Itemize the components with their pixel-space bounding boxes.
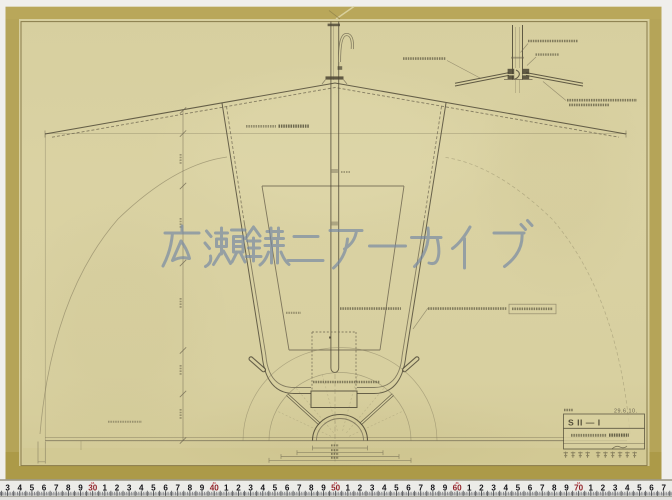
svg-text:1: 1 [103, 484, 108, 493]
svg-text:6: 6 [528, 484, 533, 493]
svg-text:3: 3 [248, 484, 253, 493]
svg-text:5: 5 [516, 484, 521, 493]
svg-text:8: 8 [431, 484, 436, 493]
svg-text:4: 4 [625, 484, 630, 493]
svg-text:2: 2 [115, 484, 120, 493]
svg-text:7: 7 [297, 484, 302, 493]
svg-text:4: 4 [139, 484, 144, 493]
svg-text:7: 7 [54, 484, 59, 493]
svg-text:6: 6 [406, 484, 411, 493]
svg-text:5: 5 [637, 484, 642, 493]
svg-text:9: 9 [443, 484, 448, 493]
svg-text:50: 50 [331, 484, 341, 493]
svg-text:3: 3 [491, 484, 496, 493]
svg-text:6: 6 [42, 484, 47, 493]
svg-text:7: 7 [175, 484, 180, 493]
svg-text:5: 5 [394, 484, 399, 493]
svg-text:7: 7 [418, 484, 423, 493]
svg-text:5: 5 [30, 484, 35, 493]
svg-text:40: 40 [210, 484, 220, 493]
svg-text:5: 5 [273, 484, 278, 493]
svg-text:6: 6 [163, 484, 168, 493]
svg-text:9: 9 [321, 484, 326, 493]
svg-text:7: 7 [661, 484, 666, 493]
svg-text:▴▴: ▴▴ [454, 480, 459, 484]
svg-text:▴▴: ▴▴ [333, 480, 338, 484]
svg-text:4: 4 [18, 484, 23, 493]
svg-text:1: 1 [224, 484, 229, 493]
svg-text:8: 8 [66, 484, 71, 493]
svg-text:4: 4 [503, 484, 508, 493]
svg-text:3: 3 [613, 484, 618, 493]
svg-text:8: 8 [552, 484, 557, 493]
svg-text:3: 3 [370, 484, 375, 493]
svg-text:60: 60 [453, 484, 463, 493]
svg-text:4: 4 [261, 484, 266, 493]
svg-text:9: 9 [564, 484, 569, 493]
svg-text:▴▴: ▴▴ [212, 480, 217, 484]
svg-text:▴▴: ▴▴ [576, 480, 581, 484]
svg-text:3: 3 [127, 484, 132, 493]
svg-text:3: 3 [5, 484, 10, 493]
svg-text:70: 70 [574, 484, 584, 493]
svg-text:1: 1 [346, 484, 351, 493]
svg-text:1: 1 [467, 484, 472, 493]
svg-text:4: 4 [382, 484, 387, 493]
svg-text:5: 5 [151, 484, 156, 493]
svg-text:6: 6 [649, 484, 654, 493]
svg-text:2: 2 [601, 484, 606, 493]
svg-text:2: 2 [358, 484, 363, 493]
svg-text:2: 2 [236, 484, 241, 493]
svg-text:9: 9 [200, 484, 205, 493]
svg-text:7: 7 [540, 484, 545, 493]
svg-text:S II — I: S II — I [568, 417, 601, 427]
svg-text:1: 1 [589, 484, 594, 493]
svg-text:▴▴: ▴▴ [90, 480, 95, 484]
svg-text:8: 8 [309, 484, 314, 493]
svg-text:8: 8 [188, 484, 193, 493]
svg-text:2: 2 [479, 484, 484, 493]
svg-text:30: 30 [88, 484, 98, 493]
svg-text:6: 6 [285, 484, 290, 493]
svg-text:9: 9 [78, 484, 83, 493]
